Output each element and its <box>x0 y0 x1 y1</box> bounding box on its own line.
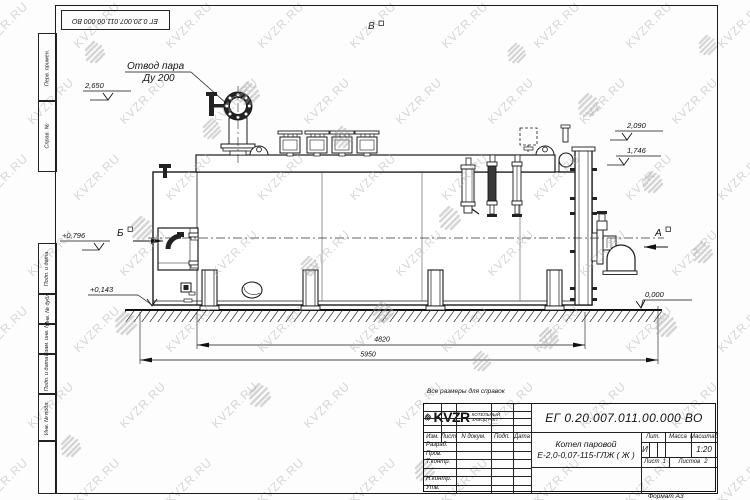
format-note: Формат А3 <box>648 493 684 500</box>
logo-subtext: КОТЕЛЬНЫЙ ЗАВОД РЭП <box>472 412 500 422</box>
kvzr-logo-icon <box>424 410 432 424</box>
lit-value: И <box>641 442 649 457</box>
title-doc-number: ЕГ 0.20.007.011.00.000 ВО <box>531 404 717 432</box>
margin-cell-perv-primen: Перв. примен. <box>38 33 57 102</box>
col-izm: Изм. <box>424 432 441 442</box>
top-stamp: ЕГ 0.20.007.011.00.000 ВО <box>61 10 170 30</box>
product-name-line2: Е-2,0-0,07-115-ГЛЖ ( Ж ) <box>537 450 634 461</box>
margin-cell-sprav-no: Справ. № <box>38 100 57 172</box>
top-stamp-number: ЕГ 0.20.007.011.00.000 ВО <box>72 17 158 24</box>
mass-label: Масса <box>665 432 691 442</box>
margin-cell-inv-dubl: Инв. № дубл. <box>38 293 57 325</box>
col-list: Лист <box>441 432 456 442</box>
reference-note: Все размеры для справок <box>427 388 505 395</box>
margin-cell-podp-data-2: Подп. и дата <box>38 353 57 395</box>
margin-cell-vzam-inv: Взам. инв. № <box>38 323 57 355</box>
title-block: ЕГ 0.20.007.011.00.000 ВО Котел паровой … <box>423 403 716 492</box>
col-podp: Подп. <box>491 432 513 442</box>
company-logo: KVZR КОТЕЛЬНЫЙ ЗАВОД РЭП <box>424 404 500 430</box>
col-n-dokum: N докум. <box>456 432 491 442</box>
sig-utv: Утв. <box>425 485 456 494</box>
product-name: Котел паровой Е-2,0-0,07-115-ГЛЖ ( Ж ) <box>531 432 641 467</box>
lit-label: Лит. <box>641 432 665 442</box>
col-data: Дата <box>513 432 531 442</box>
sheet-cell: Лист1 <box>641 457 669 467</box>
margin-cell-podp-data-1: Подп. и дата <box>38 243 57 295</box>
margin-cell-empty <box>38 440 57 494</box>
scale-value: 1:20 <box>691 442 717 457</box>
margin-cell-inv-podl: Инв. № подл. <box>38 393 57 442</box>
scale-label: Масштаб <box>691 432 717 442</box>
drawing-sheet: Отвод пара Ду 200 Б А В 2,650 2,090 1,74… <box>0 0 750 500</box>
product-name-line1: Котел паровой <box>556 439 617 450</box>
sheets-cell: Листов2 <box>669 457 717 467</box>
